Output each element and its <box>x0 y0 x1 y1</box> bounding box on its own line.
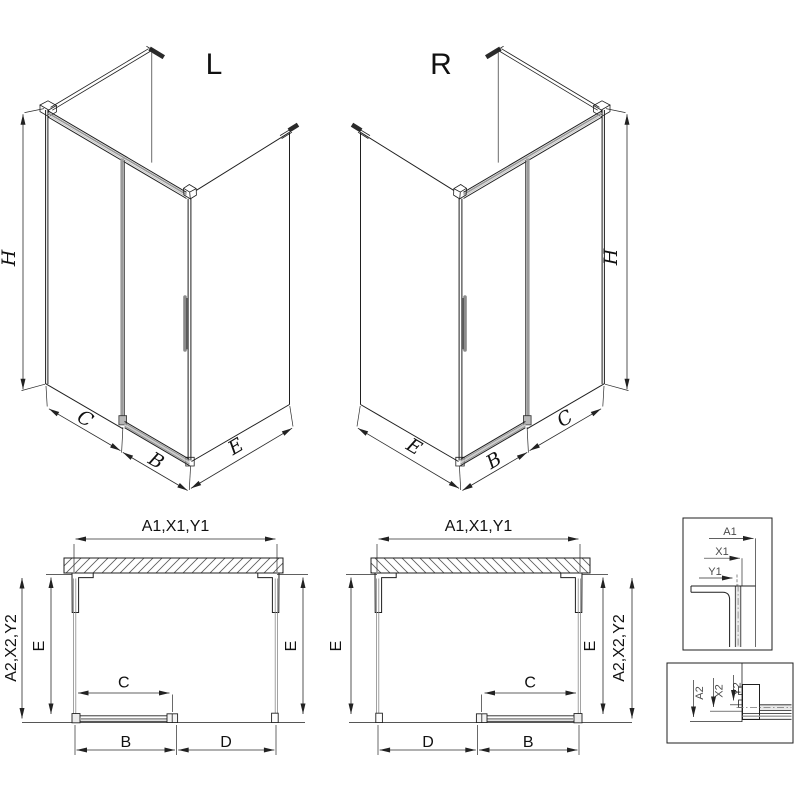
iso-right-title: R <box>430 48 452 81</box>
dim-label-d-plan-left: D <box>220 734 232 751</box>
dim-label-c-plan-left: C <box>118 675 130 692</box>
iso-view-left: L H C B E <box>0 46 298 490</box>
dim-label-a2-plan-left: A2,X2,Y2 <box>3 614 20 682</box>
dim-label-d-plan-right: D <box>422 734 434 751</box>
dim-label-h-iso-left: H <box>0 249 20 267</box>
dim-label-c-iso-right: C <box>553 405 577 432</box>
plan-view-right: A1,X1,Y1 E E A2,X2,Y2 C D B <box>328 518 632 755</box>
detail-label-x1: X1 <box>715 546 728 558</box>
dim-label-e-left-plan-left: E <box>31 641 48 652</box>
dim-label-h-iso-right: H <box>600 248 622 266</box>
detail-box-wall-profile-bottom: A2 X2 Y2 <box>667 663 793 743</box>
dim-label-e-right-plan-left: E <box>283 641 300 652</box>
dim-label-a1-plan-left: A1,X1,Y1 <box>142 518 210 535</box>
detail-label-a1: A1 <box>723 526 736 538</box>
dim-label-b-plan-left: B <box>120 734 131 751</box>
plan-view-left: A1,X1,Y1 A2,X2,Y2 E E C B D <box>3 518 308 755</box>
shower-enclosure-technical-drawing: L H C B E R H C B E A1,X1,Y1 A2,X2,Y2 E … <box>0 0 800 800</box>
dim-label-c-iso-left: C <box>73 406 97 433</box>
dim-label-e-left-plan-right: E <box>328 641 345 652</box>
detail-label-a2: A2 <box>694 686 706 699</box>
detail-box-wall-profile-top: A1 X1 Y1 <box>683 518 772 650</box>
iso-left-title: L <box>206 48 223 81</box>
dim-label-e-right-plan-right: E <box>582 641 599 652</box>
dim-label-b-plan-right: B <box>523 734 534 751</box>
dim-label-c-plan-right: C <box>524 675 536 692</box>
detail-label-y1: Y1 <box>708 566 721 578</box>
iso-view-right: R H C B E <box>352 46 629 490</box>
detail-label-x2: X2 <box>714 684 726 697</box>
dim-label-a1-plan-right: A1,X1,Y1 <box>445 518 513 535</box>
dim-label-a2-plan-right: A2,X2,Y2 <box>611 614 628 682</box>
